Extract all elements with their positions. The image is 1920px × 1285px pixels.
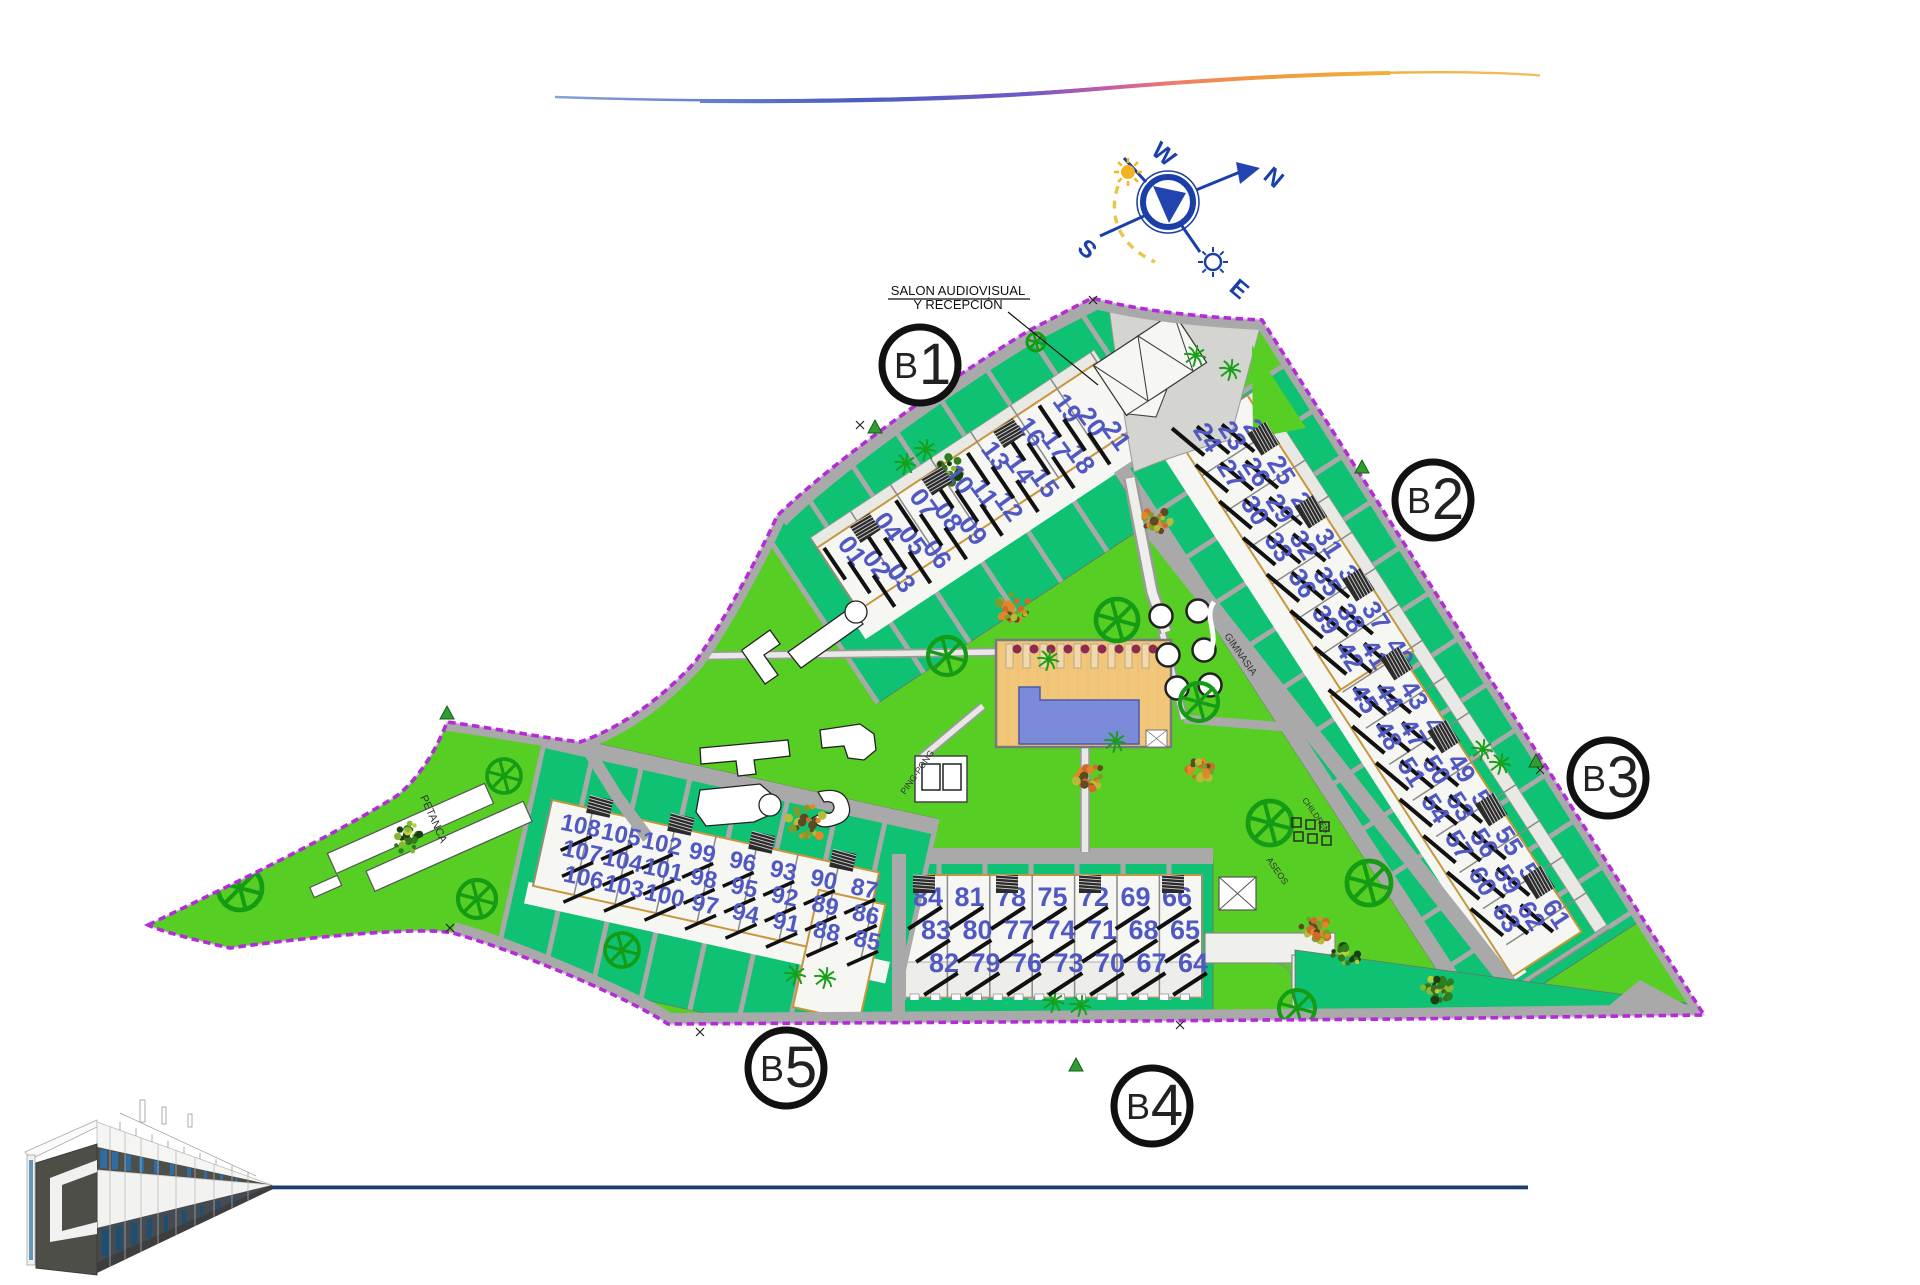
- svg-text:B: B: [1407, 480, 1431, 521]
- svg-text:SALON AUDIOVISUAL: SALON AUDIOVISUAL: [891, 283, 1025, 298]
- svg-text:5: 5: [785, 1035, 817, 1100]
- svg-text:4: 4: [1151, 1073, 1183, 1138]
- svg-text:B: B: [894, 345, 918, 386]
- svg-text:2: 2: [1432, 467, 1464, 532]
- svg-text:1: 1: [919, 332, 951, 397]
- svg-text:3: 3: [1607, 745, 1639, 810]
- svg-text:B: B: [760, 1048, 784, 1089]
- svg-text:B: B: [1582, 758, 1606, 799]
- svg-text:B: B: [1126, 1086, 1150, 1127]
